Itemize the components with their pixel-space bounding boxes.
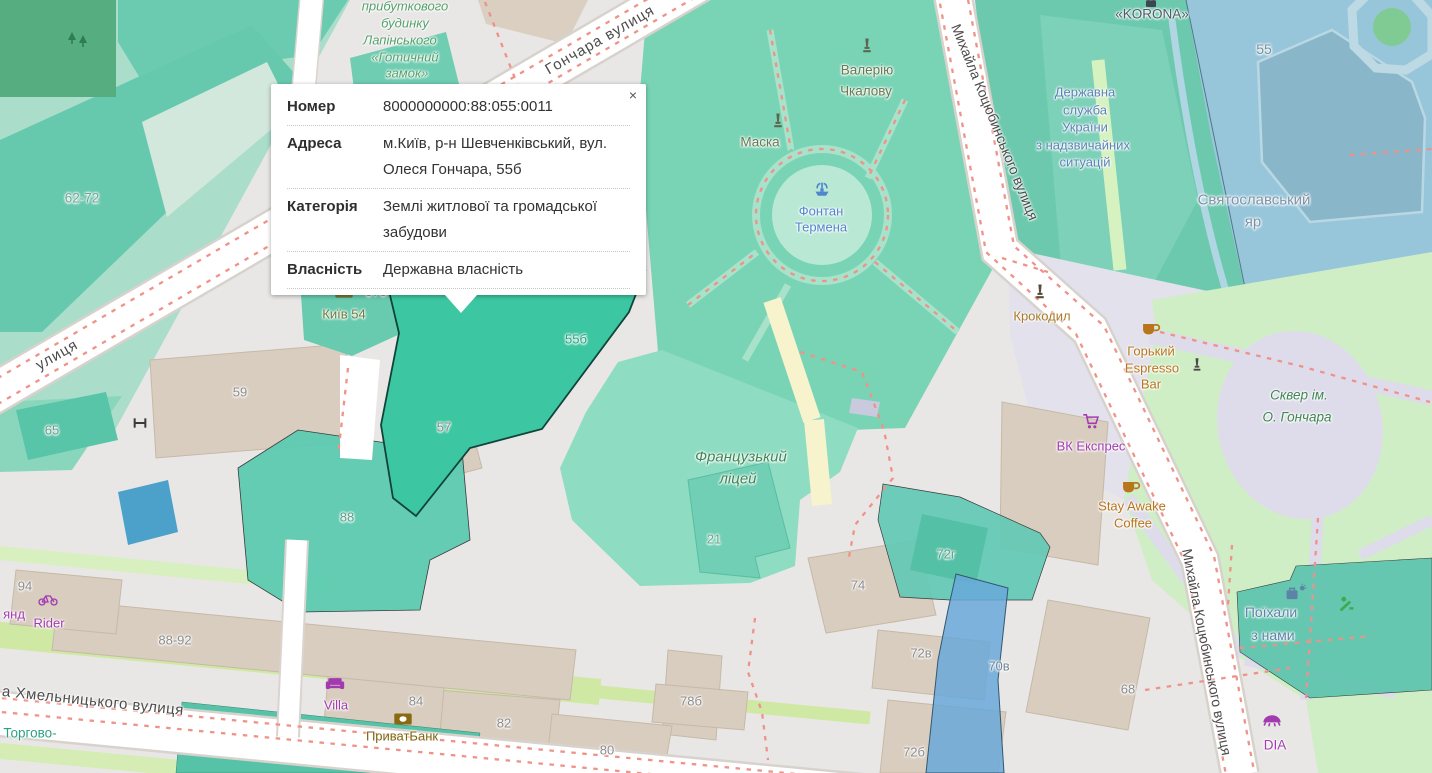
espresso-cup-icon	[1142, 320, 1161, 336]
fountain-label: Фонтан	[799, 205, 844, 218]
housenumber: 59	[233, 386, 247, 399]
poi-label-poikhaly: Поїхали	[1245, 605, 1297, 619]
housenumber: 78б	[680, 695, 702, 708]
krokodyl-monument-icon	[1035, 284, 1045, 301]
area-label: Лапінського	[363, 34, 436, 47]
area-label: будинку	[381, 17, 429, 30]
housenumber: 72б	[903, 746, 925, 759]
memorial-label-chkalov: Чкалову	[840, 84, 892, 98]
popup-row-value: Державна власність	[383, 257, 630, 283]
poi-label-stay-awake: Coffee	[1114, 517, 1152, 530]
poi-label-pryvatbank: ПриватБанк	[366, 730, 438, 743]
memorial-label-chkalov: Валерію	[841, 63, 894, 77]
popup-row-value: Землі житлової та громадської забудови	[383, 194, 630, 246]
fountain-label: Термена	[795, 221, 847, 234]
org-label-emergency: ситуацій	[1059, 156, 1110, 169]
housenumber: 84	[409, 695, 423, 708]
fountain-icon	[812, 181, 832, 199]
housenumber: 74	[851, 579, 865, 592]
poi-label-horkyi: Bar	[1141, 378, 1161, 391]
shop-label-korona: «KORONA»	[1115, 7, 1189, 21]
map-canvas[interactable]: Гончара вулиця улиця Михайла Коцюбинсько…	[0, 0, 1432, 773]
popup-row-value: м.Київ, р-н Шевченківський, вул. Олеся Г…	[383, 131, 630, 183]
poi-label-stay-awake: Stay Awake	[1098, 500, 1166, 513]
map-layer	[0, 0, 1432, 773]
area-label: прибуткового	[362, 0, 449, 13]
skver-monument-icon	[1193, 358, 1202, 373]
org-label-emergency: України	[1062, 121, 1108, 134]
post-office-label: Київ 54	[322, 308, 365, 321]
poi-label-krokodyl: Крокодил	[1013, 310, 1070, 323]
housenumber: 68	[1121, 683, 1135, 696]
park-label-skver: Сквер ім.	[1270, 388, 1328, 402]
popup-row-label: Номер	[287, 94, 383, 120]
parcel-number-selected: 55б	[565, 333, 587, 346]
school-label-lycee: ліцей	[719, 472, 756, 487]
poi-label-horkyi: Espresso	[1125, 362, 1179, 375]
poi-label-vk-ekspres: ВК Експрес	[1057, 440, 1126, 453]
close-icon[interactable]: ×	[629, 88, 637, 102]
stay-awake-cup-icon	[1122, 478, 1141, 494]
gate-icon	[132, 417, 148, 429]
housenumber: 82	[497, 717, 511, 730]
park-corner	[0, 0, 116, 97]
eyelashes-icon	[1261, 713, 1283, 728]
area-label: замок»	[386, 67, 429, 80]
area-label-yar: Святославський	[1198, 193, 1311, 208]
popup-row-label: Категорія	[287, 194, 383, 246]
popup-row-ownership: Власність Державна власність	[287, 252, 630, 289]
area-label-torhovo: Торгово-	[3, 726, 56, 740]
bank-icon	[394, 713, 413, 726]
housenumber: 72г	[936, 548, 955, 561]
housenumber: 80	[600, 744, 614, 757]
poi-label-villa: Villa	[324, 699, 348, 712]
housenumber: 88	[340, 511, 354, 524]
org-label-emergency: Державна	[1055, 86, 1116, 99]
memorial-label-maska: Маска	[740, 135, 779, 149]
housenumber: 62-72	[65, 191, 100, 205]
shopping-cart-icon	[1082, 413, 1101, 430]
maska-monument-icon	[773, 113, 783, 130]
housenumber: 88-92	[158, 634, 191, 647]
sofa-icon	[325, 677, 345, 692]
popup-pointer	[445, 295, 477, 313]
poi-label-rider-partial: янд	[3, 608, 25, 621]
org-label-emergency: служба	[1063, 104, 1107, 117]
housenumber: 70в	[988, 660, 1009, 673]
poi-label-dia: DIA	[1264, 738, 1287, 752]
area-label: «Готичний	[371, 51, 438, 64]
org-label-emergency: з надзвичайних	[1036, 139, 1130, 152]
popup-row-value: 8000000000:88:055:0011	[383, 94, 630, 120]
housenumber: 57	[437, 421, 451, 434]
area-label-yar: яр	[1245, 215, 1261, 230]
building-68	[1026, 600, 1150, 730]
chkalov-monument-icon	[862, 38, 872, 55]
trees-icon	[66, 31, 90, 49]
housenumber: 21	[707, 533, 721, 546]
popup-row-number: Номер 8000000000:88:055:0011	[287, 89, 630, 126]
popup-row-address: Адреса м.Київ, р-н Шевченківський, вул. …	[287, 126, 630, 189]
housenumber: 65	[45, 424, 59, 437]
travel-agency-icon	[1285, 583, 1307, 601]
bicycle-icon	[38, 592, 59, 606]
housenumber: 55	[1256, 42, 1272, 56]
poi-label-poikhaly: з нами	[1251, 628, 1294, 642]
park-label-skver: О. Гончара	[1262, 410, 1331, 424]
popup-row-label: Власність	[287, 257, 383, 283]
housenumber: 72в	[910, 647, 931, 660]
school-label-lycee: Французький	[695, 450, 787, 465]
popup-row-category: Категорія Землі житлової та громадської …	[287, 189, 630, 252]
poi-label-horkyi: Горький	[1127, 345, 1175, 358]
parcel-info-popup: × Номер 8000000000:88:055:0011 Адреса м.…	[271, 84, 646, 295]
housenumber: 94	[18, 580, 32, 593]
popup-row-label: Адреса	[287, 131, 383, 183]
poi-label-rider: Rider	[33, 617, 64, 630]
playground-icon	[1337, 596, 1357, 612]
